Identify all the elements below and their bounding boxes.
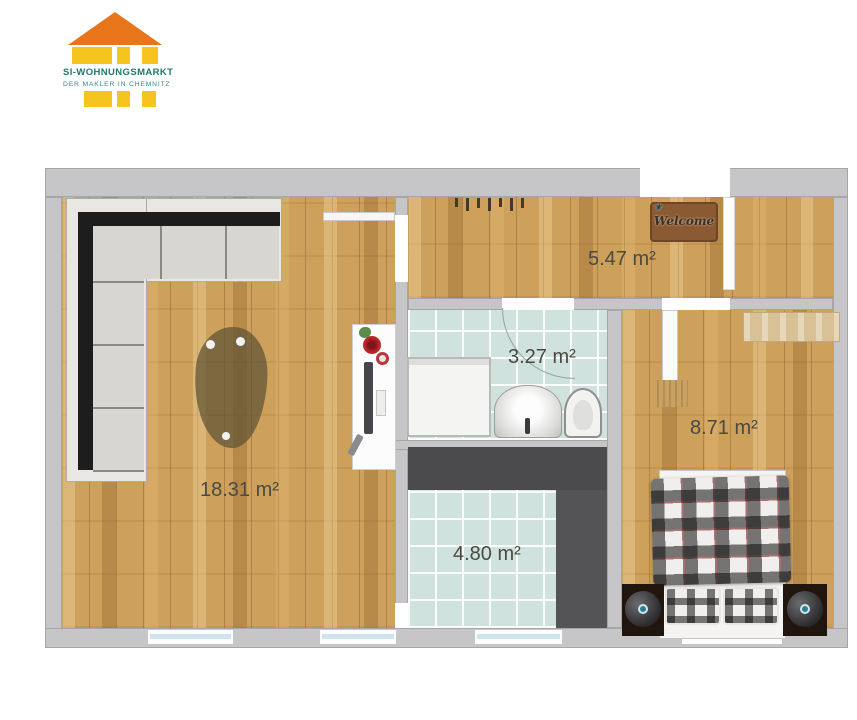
welcome-doormat: ⚜ Welcome xyxy=(650,202,718,242)
room-label-bedroom: 8.71 m² xyxy=(690,417,758,440)
living-hallway-door-low xyxy=(395,603,408,628)
nightstand-left xyxy=(622,584,664,636)
tv-monitor xyxy=(364,362,373,434)
logo-brick xyxy=(84,91,112,107)
wall-left xyxy=(45,197,62,648)
speaker-icon xyxy=(787,591,823,627)
window xyxy=(320,630,396,644)
coat-hooks xyxy=(455,198,533,212)
wardrobe-side xyxy=(556,490,607,628)
room-label-hallway-lower: 4.80 m² xyxy=(453,543,521,566)
remote xyxy=(376,390,386,416)
bed-pillow xyxy=(665,587,721,625)
coat-hook-icon xyxy=(455,198,458,207)
coat-hook-icon xyxy=(488,198,491,211)
bedroom-door-opening xyxy=(662,298,730,310)
table-candle xyxy=(206,340,215,349)
nightstand-right xyxy=(783,584,827,636)
logo-house-roof-icon xyxy=(68,12,162,45)
wall-hallway-bottom xyxy=(408,298,833,310)
table-candle xyxy=(222,432,230,440)
table-candle xyxy=(236,337,245,346)
floorplan-page: SI-WOHNUNGSMARKT DER MAKLER IN CHEMNITZ xyxy=(0,0,857,720)
living-hallway-door xyxy=(395,215,408,282)
wall-bedroom-divider xyxy=(607,310,622,628)
red-bowl xyxy=(363,336,381,354)
coat-hook-icon xyxy=(477,198,480,208)
doormat-ornament-icon: ⚜ xyxy=(654,191,662,225)
coat-hook-icon xyxy=(510,198,513,211)
bedroom-door-leaf xyxy=(662,310,678,384)
sofa-back-edge xyxy=(80,212,280,226)
washing-machine xyxy=(407,357,491,437)
bed-pillow xyxy=(723,587,779,625)
window xyxy=(475,630,562,644)
logo-title: SI-WOHNUNGSMARKT xyxy=(63,67,173,78)
wall-shelf xyxy=(743,312,840,342)
room-label-hallway: 5.47 m² xyxy=(588,248,656,271)
agency-logo: SI-WOHNUNGSMARKT DER MAKLER IN CHEMNITZ xyxy=(60,12,190,108)
coat-hook-icon xyxy=(466,198,469,211)
logo-subtitle: DER MAKLER IN CHEMNITZ xyxy=(63,81,170,88)
speaker-icon xyxy=(625,591,661,627)
coat-hook-icon xyxy=(499,198,502,207)
doormat-text: Welcome xyxy=(654,214,714,228)
logo-brick xyxy=(117,91,130,107)
logo-brick xyxy=(142,91,156,107)
toilet-bowl xyxy=(573,400,593,430)
bed-blanket xyxy=(651,475,792,586)
wardrobe-top xyxy=(408,447,607,490)
sink-faucet-icon xyxy=(525,418,530,434)
hallway-partition xyxy=(723,197,735,290)
washing-machine-controls xyxy=(409,359,489,365)
sofa-back-edge xyxy=(78,212,93,470)
logo-brick xyxy=(142,47,158,64)
room-label-living: 18.31 m² xyxy=(200,479,279,502)
logo-brick xyxy=(117,47,130,64)
window xyxy=(148,630,233,644)
wall-right xyxy=(833,197,848,648)
sofa-cushions xyxy=(93,226,144,472)
toilet xyxy=(564,388,602,438)
speaker-center xyxy=(638,604,648,614)
logo-brick xyxy=(72,47,112,64)
speaker-center xyxy=(800,604,810,614)
bedroom-doormat xyxy=(657,380,688,407)
wall-radiator xyxy=(323,212,395,221)
coat-hook-icon xyxy=(521,198,524,208)
room-label-bathroom: 3.27 m² xyxy=(508,346,576,369)
red-cup xyxy=(376,352,389,365)
